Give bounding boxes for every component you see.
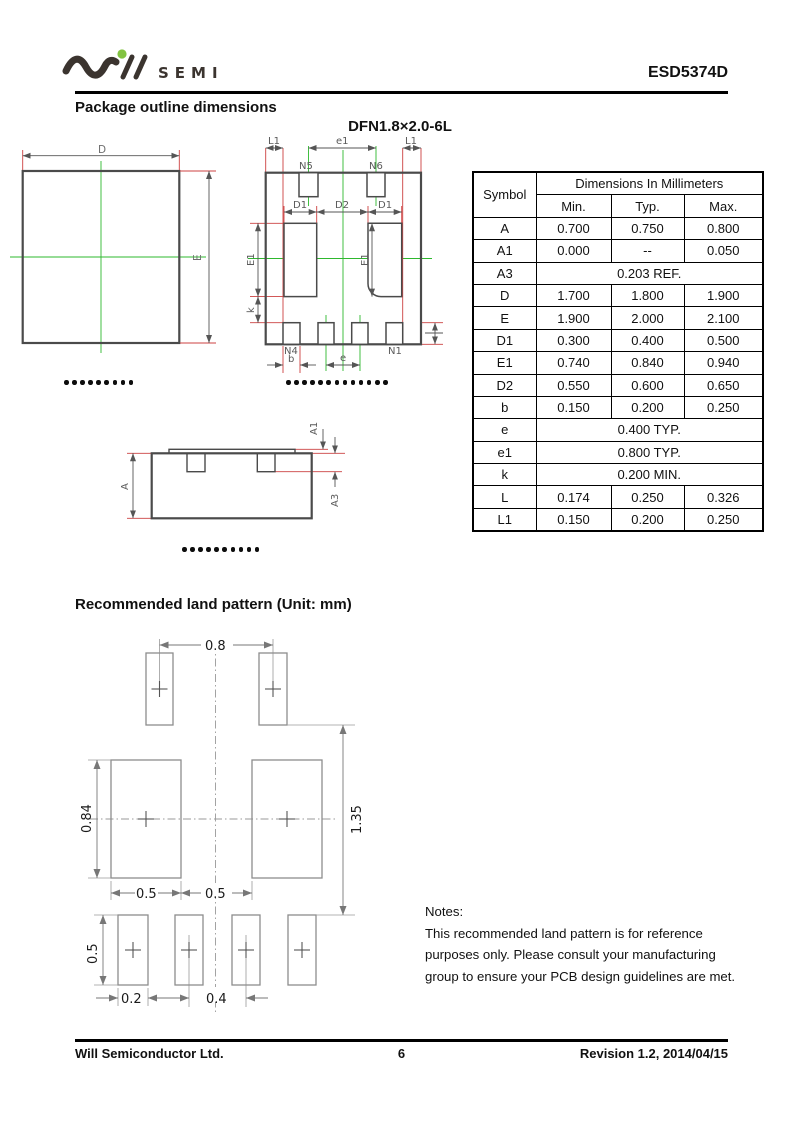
table-row: e1 0.800 TYP. [473, 441, 763, 463]
package-name: DFN1.8×2.0-6L [280, 118, 520, 135]
table-header-typ: Typ. [611, 195, 684, 217]
dim-0_8: 0.8 [205, 639, 226, 654]
dim-0_5-width: 0.5 [136, 887, 157, 902]
table-row: A1 0.000 -- 0.050 [473, 240, 763, 262]
table-header-min: Min. [536, 195, 611, 217]
top-view-caption-dots [64, 380, 133, 385]
table-row: E 1.900 2.000 2.100 [473, 307, 763, 329]
dim-0_4: 0.4 [206, 992, 227, 1007]
side-view-drawing: A A1 A3 [95, 415, 350, 540]
notes-title: Notes: [425, 901, 755, 923]
table-row: A3 0.203 REF. [473, 262, 763, 284]
table-row: L 0.174 0.250 0.326 [473, 486, 763, 508]
dim-label-A: A [120, 483, 131, 490]
section-title-land-pattern: Recommended land pattern (Unit: mm) [75, 596, 352, 613]
table-row: L1 0.150 0.200 0.250 [473, 508, 763, 531]
dimension-table: Symbol Dimensions In Millimeters Min. Ty… [472, 171, 764, 532]
notes-line: group to ensure your PCB design guidelin… [425, 966, 755, 988]
notes-line: purposes only. Please consult your manuf… [425, 944, 755, 966]
dim-0_2: 0.2 [121, 992, 142, 1007]
dim-label-A1: A1 [309, 422, 320, 435]
dim-label-k: k [246, 307, 257, 313]
table-row: D2 0.550 0.600 0.650 [473, 374, 763, 396]
notes-block: Notes: This recommended land pattern is … [425, 901, 755, 987]
top-view-drawing: D E [10, 145, 235, 360]
will-semi-logo: SEMI [60, 46, 250, 95]
table-row: D 1.700 1.800 1.900 [473, 284, 763, 306]
logo-wave [66, 59, 116, 75]
footer: Will Semiconductor Ltd. 6 Revision 1.2, … [75, 1046, 728, 1061]
table-row: A 0.700 0.750 0.800 [473, 217, 763, 239]
dim-label-D: D [98, 145, 106, 156]
dim-0_5-height: 0.5 [86, 943, 101, 964]
dim-label-e: e [340, 353, 346, 364]
table-header-dimensions: Dimensions In Millimeters [536, 172, 763, 195]
dim-label-L1-left: L1 [268, 136, 280, 147]
dim-label-D1-left: D1 [293, 200, 307, 211]
footer-page-number: 6 [293, 1046, 511, 1061]
dim-label-E1-left: E1 [246, 253, 257, 266]
footer-rule [75, 1039, 728, 1042]
side-view-caption-dots [182, 547, 259, 552]
notes-line: This recommended land pattern is for ref… [425, 923, 755, 945]
land-pattern-drawing: 0.8 0.84 1.35 0.5 0.5 0.5 0.2 [55, 625, 375, 1020]
table-row: k 0.200 MIN. [473, 464, 763, 486]
dim-label-L1-right: L1 [405, 136, 417, 147]
dim-label-A3: A3 [330, 494, 341, 507]
dim-label-D1-right: D1 [378, 200, 392, 211]
pin-label-N1: N1 [388, 346, 402, 357]
dim-0_84: 0.84 [80, 804, 95, 833]
table-header-symbol: Symbol [473, 172, 536, 217]
table-row: e 0.400 TYP. [473, 419, 763, 441]
dim-label-D2: D2 [335, 200, 349, 211]
section-title-outline: Package outline dimensions [75, 99, 277, 116]
pin-label-N5: N5 [299, 161, 313, 172]
table-row: D1 0.300 0.400 0.500 [473, 329, 763, 351]
table-row: b 0.150 0.200 0.250 [473, 396, 763, 418]
table-header-max: Max. [684, 195, 763, 217]
bottom-view-caption-dots [286, 380, 388, 385]
bottom-view-drawing: L1 e1 L1 N5 N6 D1 D2 D1 E1 k E1 N4 N1 b … [240, 135, 452, 380]
datasheet-page: SEMI ESD5374D Package outline dimensions… [0, 0, 800, 1131]
part-number: ESD5374D [500, 64, 728, 82]
footer-revision: Revision 1.2, 2014/04/15 [510, 1046, 728, 1061]
footer-company: Will Semiconductor Ltd. [75, 1046, 293, 1061]
header-rule [75, 91, 728, 94]
dim-label-E1-inner: E1 [360, 253, 371, 266]
dim-label-b: b [288, 354, 294, 365]
pin-label-N6: N6 [369, 161, 383, 172]
table-row: E1 0.740 0.840 0.940 [473, 352, 763, 374]
dim-0_5-gap: 0.5 [205, 887, 226, 902]
dim-label-E: E [192, 254, 204, 261]
pad-center-crosses [125, 681, 310, 958]
dim-label-e1: e1 [336, 136, 349, 147]
logo-green-dot [117, 49, 126, 58]
logo-semi-text: SEMI [158, 64, 224, 82]
dim-1_35: 1.35 [350, 805, 365, 834]
